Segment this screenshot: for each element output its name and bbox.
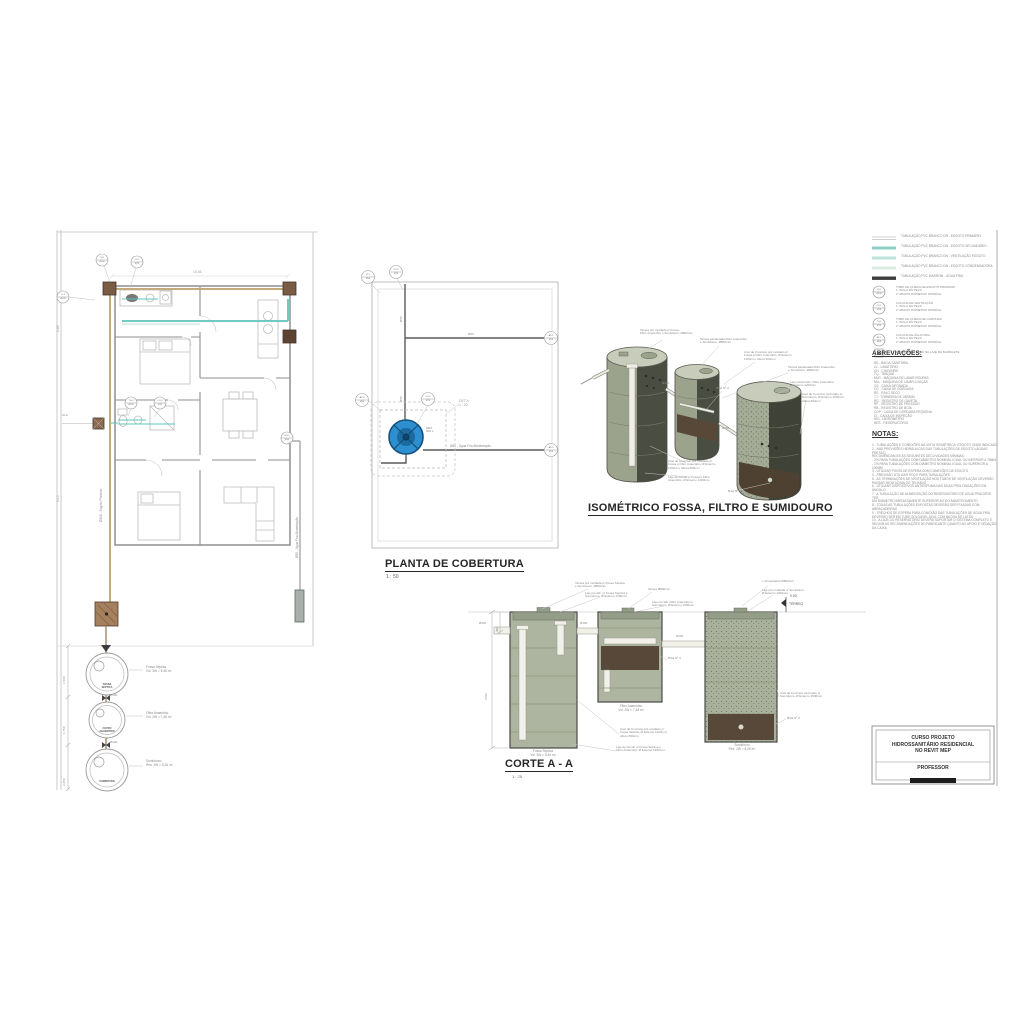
plan-dim-left1: 2,85: [56, 325, 60, 332]
sec-level-name: TÉRREO: [789, 602, 803, 606]
sec-dim-2700: 2700: [485, 693, 488, 700]
legend-line-1: TUBULAÇÃO PVC BRANCO DN - ESGOTO PRIMÁRI…: [901, 235, 981, 239]
callout-ci2: CI-2: [62, 414, 68, 417]
abbreviations-body: BS - BACIA SANITÁRIA LV - LAVATÓRIO CH -…: [874, 362, 998, 426]
notes-heading: NOTAS:: [872, 431, 898, 438]
iso-ann-a4: Tampa parafusada Filtro Anaeróbio e Sumi…: [788, 366, 844, 373]
iso-title: ISOMÉTRICO FOSSA, FILTRO E SUMIDOURO: [588, 502, 833, 516]
callout-rg1: RG-1 Ø50: [280, 434, 294, 443]
legend-line-5: TUBULAÇÃO PVC MARROM - ÁGUA FRIA: [901, 275, 963, 279]
sumidouro-label: Sumidouro Res. 2W = 8,26 m³: [146, 760, 188, 768]
iso-ann-a1: Tampa pré moldada p/ Fossa, Filtro Anaer…: [640, 329, 702, 336]
legend-line-2: TUBULAÇÃO PVC BRANCO DN - ESGOTO SECUNDÁ…: [901, 245, 987, 249]
roof-pipe-top-label: Ø50: [468, 333, 474, 336]
sec-ann-a8: Anel de Concreto pré moldado p/ Fossa Sé…: [620, 728, 680, 738]
sec-ann-a3: Tampa Ø800mm: [648, 588, 678, 591]
chain-dim3: 2,250: [63, 778, 66, 786]
iso-ann-a8: Laje de Fundo p/ Fossa e Filtro Anaeróbi…: [668, 476, 728, 483]
roof-scale: 1 : 50: [386, 574, 399, 580]
iso-brita-1: Brita Nº 4: [716, 387, 729, 390]
right-riser-label: Ø50 - Água Fria Alimentação: [296, 517, 300, 558]
callout-tq1: TQ-1 Ø100: [95, 256, 109, 265]
plan-dim-top: 10,45: [192, 270, 203, 274]
sec-pipe-1: Ø100: [479, 622, 486, 625]
roof-riser2: Ø50: [400, 396, 403, 402]
sec-ann-a4: Laje pré fab. Filtro Anaeróbio e Sumidou…: [652, 601, 710, 608]
roof-callout-1: VT-1 Ø50: [361, 273, 375, 282]
sumidouro-tag: SUMIDOURO: [93, 781, 121, 784]
roof-callout-2: CV-1 Ø75: [389, 268, 403, 277]
sec-brita-2: Brita Nº 4: [787, 717, 800, 720]
section-tanks: [468, 586, 866, 751]
sec-sumidouro-label: Sumidouro Res. 2W = 8,26 m³: [716, 744, 768, 752]
callout-cv2: CV-2 Ø75: [153, 399, 167, 408]
inspection-boxes: [93, 282, 296, 626]
plan-dim-left2: 6,10: [56, 495, 60, 502]
roof-plan-geometry: [356, 266, 559, 549]
chain-pipe2: Ø100: [110, 741, 117, 744]
fossa-tag: FOSSA SÉPTICA: [97, 684, 117, 690]
sec-dim-400: 400: [496, 627, 499, 632]
professor-name-redacted: ██████████ ███: [910, 778, 956, 783]
sec-pipe-3: Ø100: [676, 635, 683, 638]
filtro-tag: FILTRO ANAERÓBIO: [95, 728, 119, 734]
iso-brita-2: Brita Nº 4: [728, 490, 741, 493]
iso-ann-a3: Anel de Concreto pré moldado p/ Fossa e …: [744, 351, 804, 361]
cold-water-pipe: [62, 424, 300, 591]
notes-body: 1 - TUBULAÇÕES E CONEXÕES NA VISTA ISOMÉ…: [872, 444, 998, 531]
iso-pipe-1: Ø100: [662, 382, 669, 385]
section-title: CORTE A - A: [505, 758, 573, 772]
legend-sym-tag-4: AF-1 Ø25: [872, 336, 886, 345]
legend-sym-text-2: COLUNA DE VENTILAÇÃO 1: SIGLA DA PEÇA 2:…: [896, 302, 1006, 312]
roof-callout-6: CV-2 Ø75: [421, 395, 435, 404]
left-riser-label: Ø100 - Esgoto Primário: [100, 489, 104, 522]
callout-cv1: CV-1 Ø75: [130, 258, 144, 267]
roof-callout-3: AF-1 Ø25: [544, 334, 558, 343]
legend-sym-text-1: TUBO DE QUEDA DE ESGOTO PRIMÁRIO 1: SIGL…: [896, 286, 1006, 296]
iso-ann-a5: Laje para fundo, Filtro Anaeróbio, Ø Ext…: [790, 381, 846, 388]
legend-sym-tag-3: TQ-2 Ø75: [872, 320, 886, 329]
door-arcs: [146, 316, 276, 476]
abbreviations-heading: ABREVIAÇÕES:: [872, 350, 922, 357]
floor-plan-walls: [115, 286, 290, 545]
sec-brita-1: Brita Nº 4: [668, 657, 681, 660]
legend-line-4: TUBULAÇÃO PVC BRANCO DN - ESGOTO CONDENS…: [901, 265, 993, 269]
legend-sym-text-3: TUBO DE QUEDA DE GORDURA 1: SIGLA DA PEÇ…: [896, 318, 1006, 328]
iso-ann-a6: Anel de Concreto perfurado p/ Sumidouro,…: [802, 393, 860, 403]
roof-callout-4: AF-2 Ø25: [544, 446, 558, 455]
legend-sym-tag-1: TQ-1 Ø100: [872, 288, 886, 297]
chain-pipe1: Ø100: [110, 694, 117, 697]
sec-ann-a2: Laje pré fab. p/ Fossa Séptica e Sumidou…: [585, 592, 645, 599]
roof-callout-5: AF-3 Ø20: [355, 396, 369, 405]
iso-ann-a7: Anel de Concreto pré moldado p/ Fossa e …: [668, 460, 728, 470]
drawing-canvas: [0, 0, 1024, 1024]
chain-dim1: 1,500: [63, 676, 66, 684]
sec-level-value: 0,00: [790, 594, 797, 598]
furniture: [118, 290, 278, 541]
sec-pipe-2: Ø100: [580, 622, 587, 625]
drawing-sheet: TQ-1 Ø100 CV-1 Ø75 CI-1 Ø100 TQ-2 Ø100 C…: [0, 0, 1024, 1024]
title-block-course: CURSO PROJETO HIDROSSANITÁRIO RESIDENCIA…: [878, 735, 988, 755]
fossa-label: Fossa Séptica Vol. 3W = 5,46 m³: [146, 666, 188, 674]
section-scale: 1 : 25: [512, 774, 522, 779]
sec-ann-a5: + Abraçadeira Ø800mm: [762, 580, 810, 583]
sec-ann-a1: Tampa pré moldada p/ Fossa Séptica e Sum…: [575, 582, 639, 589]
filtro-label: Filtro Anaeróbio Vol. 2W = 7,48 m³: [146, 712, 188, 720]
roof-det-label: DET A 1 : 20: [459, 399, 469, 407]
water-meter-box: [295, 590, 304, 622]
septic-chain: [66, 626, 143, 791]
sec-ann-a9: Laje de Fundo p/ Fossa Séptica e Filtro …: [616, 746, 676, 753]
legend-sym-text-4: COLUNA DE ÁGUA FRIA 1: SIGLA DA PEÇA 2: …: [896, 334, 1006, 344]
legend-line-3: TUBULAÇÃO PVC BRANCO DN - VENTILAÇÃO ESG…: [901, 255, 985, 259]
iso-ann-a2: Tampa parafusada Filtro Anaeróbio e Sumi…: [700, 338, 758, 345]
title-block-professor-name: ██████████ ███: [878, 770, 988, 789]
sec-ann-a6: Laje pré moldada p/ Sumidouro, Ø Externo…: [762, 589, 816, 596]
callout-ci1: CI-1 Ø100: [56, 293, 70, 302]
sec-filtro-label: Filtro Anaeróbio Vol. 2W = 7,48 m³: [606, 705, 656, 713]
roof-riser1: Ø50: [400, 316, 403, 322]
callout-tq2: TQ-2 Ø100: [124, 399, 138, 408]
legend-sym-tag-2: CV-1 Ø75: [872, 304, 886, 313]
roof-feed-label: Ø50 - Água Fria Alimentação: [450, 445, 491, 449]
iso-pipe-2: Ø100: [722, 427, 729, 430]
sec-fossa-label: Fossa Séptica Vol. 3W = 5,46 m³: [518, 750, 568, 758]
sec-ann-a7: Anel de Concreto perfurado p/ Sumidouro,…: [780, 692, 836, 699]
roof-tank-label: RES. 500 L: [426, 427, 442, 434]
roof-title: PLANTA DE COBERTURA: [385, 558, 524, 572]
chain-dim2: 1,750: [63, 726, 66, 734]
